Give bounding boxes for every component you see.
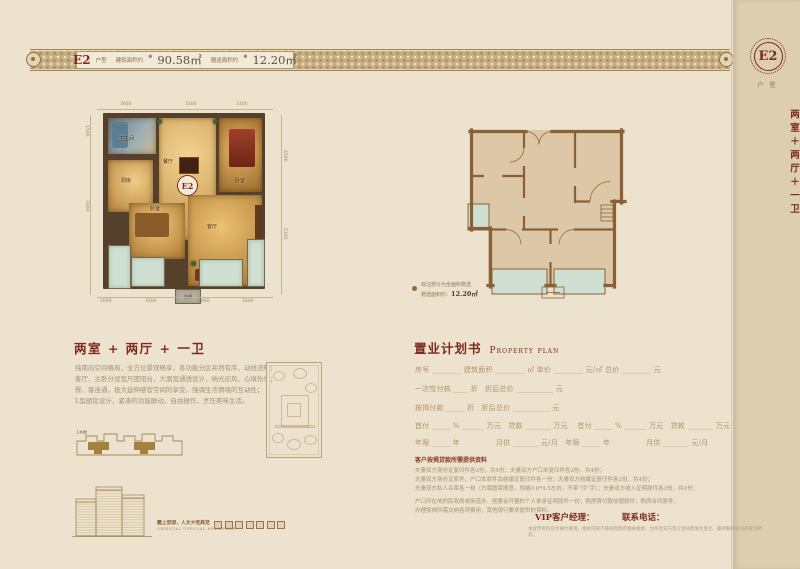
dim-label: 3800	[198, 299, 209, 304]
roof-line	[76, 499, 96, 502]
seal-icon	[256, 521, 264, 529]
layout-title: 两室 + 两厅 + 一卫	[74, 338, 205, 357]
tree-icon	[304, 435, 317, 445]
unit-code: E2	[73, 53, 91, 67]
form-row: 按揭付款 _____ 折 折后总价 __________ 元	[415, 403, 559, 413]
flower-marker-icon: ❋	[243, 54, 247, 60]
plant-icon	[213, 119, 218, 124]
note-line2: 赠送面积约：12.20㎡	[421, 290, 478, 300]
dim-label: 3600	[120, 102, 131, 107]
area2-value: 12.20㎡	[252, 52, 296, 68]
balcony	[131, 257, 165, 287]
form-row: 年限 _____ 年 月供 _______ 元/月 年限 _____ 年 月供 …	[415, 438, 708, 448]
room-label-master: 卧室	[235, 177, 245, 184]
room-label-bedroom: 卧室	[150, 205, 160, 212]
bed	[135, 213, 169, 237]
balcony	[199, 259, 243, 287]
tagline: 麓上官邸，人文大宅典范	[157, 519, 210, 526]
dimension-line-left	[90, 115, 91, 295]
dimension-line-right	[281, 115, 282, 295]
unit-title-box: E2 户型 建筑面积约 ❋ 90.58㎡ 赠送面积约 ❋ 12.20㎡	[76, 51, 294, 69]
property-plan-title-cn: 置业计划书	[414, 341, 482, 356]
tower	[76, 502, 96, 536]
unit-badge: E2	[177, 175, 198, 196]
seal-icon	[235, 521, 243, 529]
room-label-bathroom: 卫生间	[119, 135, 134, 142]
dim-label: 1500	[84, 125, 89, 136]
tower	[122, 498, 144, 536]
seal-icon	[246, 521, 254, 529]
layout-vertical-text: 两室＋两厅＋一卫	[733, 98, 800, 228]
balcony	[247, 239, 265, 287]
building-sketch	[70, 482, 154, 540]
top-ornament-band: E2 户型 建筑面积约 ❋ 90.58㎡ 赠送面积约 ❋ 12.20㎡	[30, 49, 730, 71]
unit-medallion-code: E2	[754, 42, 783, 71]
tree-icon	[287, 439, 301, 450]
plate-label: 1#楼	[76, 429, 88, 436]
tree-icon	[272, 433, 284, 443]
property-plan-title: 置业计划书Property plan	[414, 338, 559, 357]
rendered-floorplan: 空调 卫生间 厨房 餐厅 卧室 卧室 客厅 E2	[95, 113, 273, 305]
dim-label: 5100	[282, 228, 287, 239]
tree-icon	[305, 383, 317, 393]
tree-icon	[273, 371, 285, 381]
room-label-dining: 餐厅	[163, 158, 173, 165]
dimension-line-top	[97, 109, 273, 110]
garden-plan-thumbnail	[266, 362, 322, 458]
docs-header: 客户按揭贷款所需提供资料	[415, 455, 487, 464]
band-end-ornament-left	[26, 52, 41, 67]
area2-label: 赠送面积约	[211, 56, 239, 64]
brochure-page: E2 户型 建筑面积约 ❋ 90.58㎡ 赠送面积约 ❋ 12.20㎡ E2 户…	[0, 0, 800, 569]
outline-floorplan	[462, 126, 630, 302]
note-bullet-icon	[412, 286, 417, 291]
form-row: 一次性付款 ____ 折 折后总价 __________ 元	[415, 384, 563, 394]
area1-value: 90.58㎡	[157, 52, 201, 68]
side-band: E2 户型 两室＋两厅＋一卫	[733, 0, 800, 569]
room-label-kitchen: 厨房	[121, 177, 131, 184]
room-label-living: 客厅	[207, 223, 217, 230]
seal-icon	[214, 521, 222, 529]
seal-icon	[277, 521, 285, 529]
dimension-line-bottom	[97, 297, 273, 298]
roof-line	[96, 487, 122, 490]
vip-manager-label: VIP客户经理：	[535, 511, 594, 523]
master-bed	[229, 129, 255, 167]
area1-label: 建筑面积约	[116, 56, 144, 64]
seal-stamps	[214, 521, 285, 529]
tv-cabinet	[255, 205, 262, 243]
dim-label: 1600	[242, 299, 253, 304]
seal-icon	[225, 521, 233, 529]
phone-label: 联系电话：	[622, 511, 665, 523]
garden-path-line	[275, 425, 315, 428]
dim-label: 3000	[84, 200, 89, 211]
docs-line: 户口所在地的民政局或街道办、居委会开据的个人单身证明原件一份；购房首付款收据原件…	[415, 498, 679, 507]
property-plan-title-en: Property plan	[490, 346, 560, 356]
roof-line	[122, 495, 144, 498]
highlighted-unit	[134, 442, 155, 454]
disclaimer: 本宣传资料仅为要约邀请，相关内容不排除因政府相关规划、文件及双方签订合同而发生变…	[528, 527, 766, 538]
plant-icon	[191, 261, 196, 266]
floor-plate-diagram: 1#楼	[74, 428, 190, 460]
dim-label: 4500	[282, 150, 287, 161]
tree-icon	[293, 368, 307, 379]
flower-bed	[108, 245, 131, 289]
gift-area-value: 12.20㎡	[451, 290, 478, 298]
gift-area-note: 标注部分为全面积赠送 赠送面积约：12.20㎡	[421, 281, 478, 299]
seal-icon	[267, 521, 275, 529]
floor-fill	[470, 130, 623, 287]
docs-line: 夫妻双方私人名章各一枚（方章圆章随意，规格0.8*4.5左右，不带“印”字）；夫…	[415, 485, 698, 494]
dim-label: 3500	[185, 102, 196, 107]
docs-line: 夫妻双方身份证原件，户口本原件及结婚证复印件各一份；夫妻双方结婚证复印件各2份，…	[415, 476, 698, 485]
dining-table	[179, 157, 199, 174]
unit-suffix: 户型	[96, 56, 107, 64]
plant-icon	[157, 119, 162, 124]
docs-line: 夫妻双方身份证复印件各2份，共4份；夫妻双方户口本复印件各2份，共4份；	[415, 467, 698, 476]
docs-list: 夫妻双方身份证复印件各2份，共4份；夫妻双方户口本复印件各2份，共4份； 夫妻双…	[415, 467, 698, 494]
unit-medallion-label: 户型	[733, 80, 800, 89]
note-line1: 标注部分为全面积赠送	[421, 281, 478, 290]
tower	[96, 490, 122, 536]
form-row: 首付 _____ % ______ 万元 贷款 _______ 万元 首付 __…	[415, 421, 730, 431]
highlighted-unit	[88, 442, 109, 454]
flower-marker-icon: ❋	[148, 54, 152, 60]
dim-label: 1600	[100, 299, 111, 304]
dim-label: 3100	[236, 102, 247, 107]
dim-label: 3200	[145, 299, 156, 304]
unit-medallion: E2	[750, 38, 786, 74]
form-row: 房号 ________ 建筑面积 ________ ㎡ 单价 ________ …	[415, 365, 661, 375]
garden-court-outline	[287, 403, 301, 417]
